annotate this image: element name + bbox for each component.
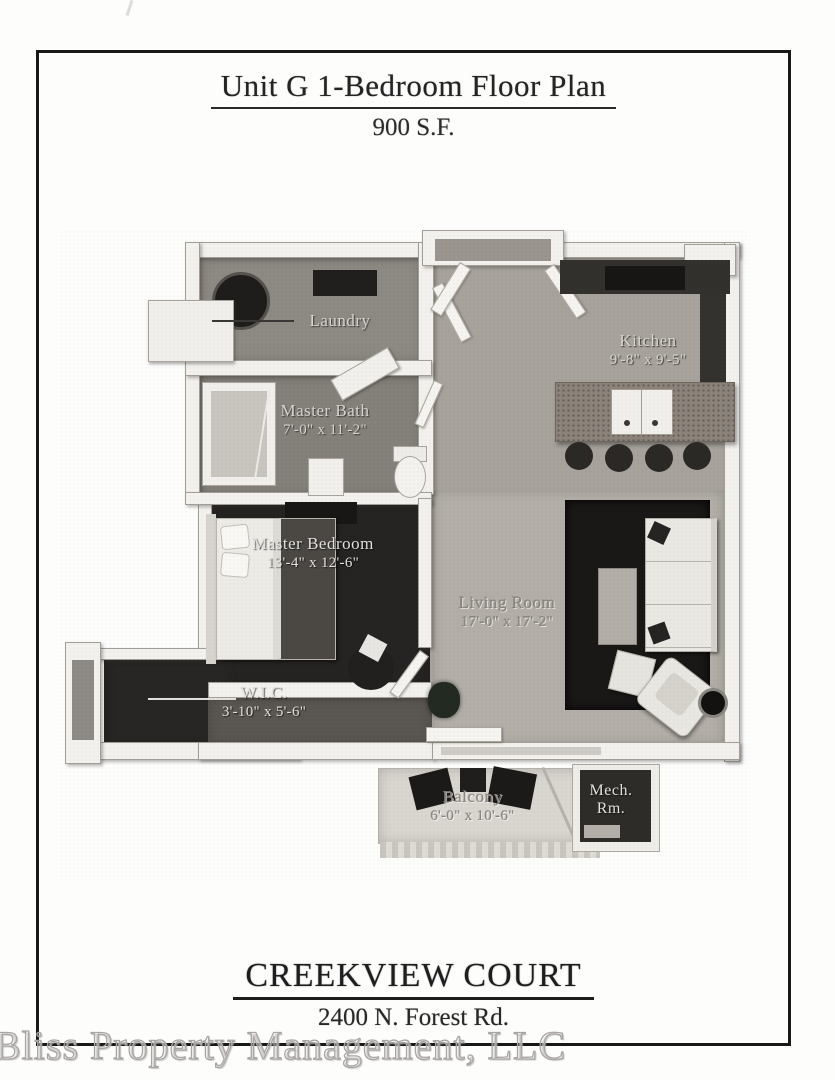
scanned-floor-plan-page: Unit G 1-Bedroom Floor Plan 900 S.F. bbox=[0, 0, 835, 1080]
master-bedroom-name: Master Bedroom bbox=[225, 533, 401, 554]
floor-plan: Laundry Kitchen 9'-8" x 9'-5" Master Bat… bbox=[60, 230, 750, 880]
wic-label: W.I.C. 3'-10" x 5'-6" bbox=[190, 682, 338, 722]
kitchen-name: Kitchen bbox=[578, 330, 718, 351]
bath-sink bbox=[308, 458, 344, 496]
wic-dimensions: 3'-10" x 5'-6" bbox=[190, 703, 338, 722]
master-bath-name: Master Bath bbox=[250, 400, 400, 421]
bar-stool bbox=[565, 442, 593, 470]
floor-plant-icon bbox=[428, 682, 460, 718]
mech-room-name: Mech. Rm. bbox=[578, 782, 644, 819]
laundry-name: Laundry bbox=[275, 310, 405, 331]
wic-name: W.I.C. bbox=[190, 682, 338, 703]
sliding-door bbox=[441, 747, 601, 755]
property-name: CREEKVIEW COURT bbox=[233, 957, 593, 1000]
scan-smudge bbox=[126, 0, 134, 16]
laundry-label: Laundry bbox=[275, 310, 405, 331]
master-bedroom-label: Master Bedroom 13'-4" x 12'-6" bbox=[225, 533, 401, 573]
footer-block: CREEKVIEW COURT 2400 N. Forest Rd. bbox=[36, 957, 791, 1032]
mech-room-step bbox=[584, 825, 620, 838]
master-bath-dimensions: 7'-0" x 11'-2" bbox=[250, 421, 400, 440]
balcony-label: Balcony 6'-0" x 10'-6" bbox=[400, 786, 545, 826]
toilet-icon bbox=[394, 456, 426, 498]
deck-boards bbox=[380, 842, 600, 858]
mech-room-label: Mech. Rm. bbox=[578, 782, 644, 819]
entry-alcove bbox=[422, 230, 564, 266]
balcony-dimensions: 6'-0" x 10'-6" bbox=[400, 807, 545, 826]
window-bay-glass bbox=[72, 660, 94, 740]
kitchen-island bbox=[555, 382, 735, 442]
square-footage: 900 S.F. bbox=[36, 114, 791, 142]
page-title: Unit G 1-Bedroom Floor Plan bbox=[211, 68, 617, 109]
master-bedroom-dimensions: 13'-4" x 12'-6" bbox=[225, 554, 401, 573]
island-sink-icon bbox=[611, 389, 673, 435]
wall-wic-top bbox=[98, 648, 212, 660]
balcony-name: Balcony bbox=[400, 786, 545, 807]
entry-recess bbox=[435, 239, 551, 261]
living-room-label: Living Room 17'-0" x 17'-2" bbox=[430, 592, 584, 632]
wall-right bbox=[724, 242, 740, 762]
watermark: Bliss Property Management, LLC bbox=[0, 1022, 566, 1069]
bar-stool bbox=[605, 444, 633, 472]
bar-stool bbox=[645, 444, 673, 472]
kitchen-label: Kitchen 9'-8" x 9'-5" bbox=[578, 330, 718, 370]
wall-living-bottom bbox=[432, 742, 740, 760]
laundry-appliance bbox=[148, 300, 234, 362]
wall-bottom-left bbox=[198, 742, 434, 760]
kitchen-dimensions: 9'-8" x 9'-5" bbox=[578, 351, 718, 370]
master-bath-label: Master Bath 7'-0" x 11'-2" bbox=[250, 400, 400, 440]
balcony-threshold bbox=[426, 727, 502, 742]
laundry-counter bbox=[313, 270, 377, 296]
side-table bbox=[698, 688, 728, 718]
living-room-name: Living Room bbox=[430, 592, 584, 613]
title-block: Unit G 1-Bedroom Floor Plan 900 S.F. bbox=[36, 68, 791, 142]
bed-headboard bbox=[206, 514, 216, 664]
range-icon bbox=[605, 266, 685, 290]
living-room-dimensions: 17'-0" x 17'-2" bbox=[430, 613, 584, 632]
coffee-table bbox=[598, 568, 637, 645]
bar-stool bbox=[683, 442, 711, 470]
